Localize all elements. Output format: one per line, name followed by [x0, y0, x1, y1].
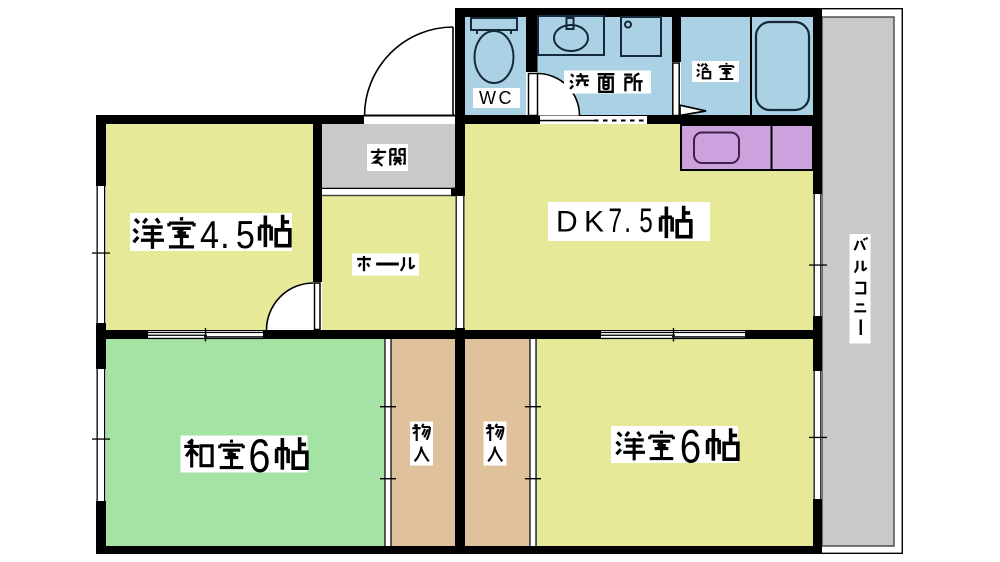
svg-text:WC: WC — [479, 88, 514, 108]
svg-text:6: 6 — [680, 421, 701, 473]
svg-text:7.5: 7.5 — [608, 202, 652, 240]
svg-text:6: 6 — [248, 431, 270, 483]
svg-text:4.5: 4.5 — [200, 213, 255, 257]
